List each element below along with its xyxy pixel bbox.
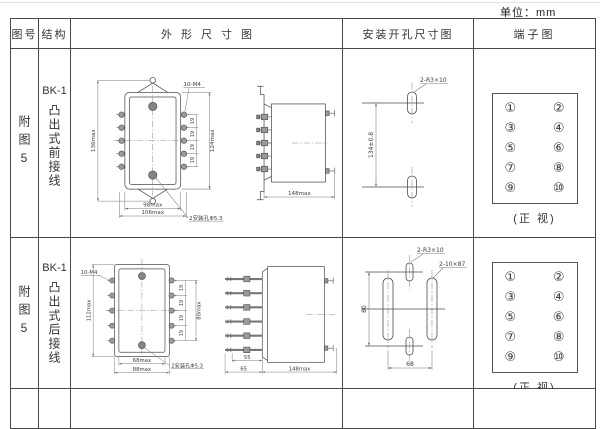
screw-spec-label: 10-M4: [183, 82, 201, 88]
header-structure: 结构: [39, 19, 71, 49]
mounting-holes-label: 2安装孔Φ5.3: [189, 214, 223, 222]
dim-height-total: 112max: [87, 300, 93, 322]
dim-span: 134±0.8: [368, 132, 375, 158]
terminal-pin: ⑥: [553, 142, 565, 155]
dim-pin-inner: 55: [244, 355, 251, 361]
terminal-pin: ④: [553, 122, 565, 135]
mounting-cell: 80 68 2-R3×10 2-10×87: [343, 238, 474, 389]
next-row-stub: [39, 389, 71, 429]
dimension-lines: [369, 254, 467, 371]
mounting-drawing: 134±0.8 2-R3×10: [346, 71, 471, 216]
next-row-stub: [343, 389, 474, 429]
terminal-pin: ⑨: [505, 182, 517, 195]
terminal-pin: ①: [505, 271, 517, 284]
side-view-drawing: 55 65 148max: [218, 248, 342, 388]
mounting-cell: 134±0.8 2-R3×10: [343, 49, 474, 238]
figure-no-cell: 附图5: [11, 238, 39, 389]
mounting-slots: [361, 263, 445, 355]
terminal-pin: ⑦: [505, 162, 517, 175]
next-row-stub: [71, 389, 343, 429]
model-label: BK-1: [42, 262, 66, 274]
dim-width-inner: 98max: [143, 203, 163, 209]
terminal-column-left: ① ③ ⑤ ⑦ ⑨: [505, 271, 517, 364]
outline-cell: 10-M4 112max 19 19 19 19 80max 68max 88m…: [71, 238, 343, 389]
terminal-pin: ③: [505, 291, 517, 304]
terminal-pin: ④: [553, 291, 565, 304]
terminal-pin: ⑤: [505, 311, 517, 324]
page-top-edge: [0, 2, 600, 3]
dim-height-total: 136max: [91, 129, 97, 152]
dim-pitch: 19: [179, 315, 185, 321]
dim-pitch: 19: [179, 285, 185, 291]
terminal-pin: ⑧: [553, 162, 565, 175]
spec-table: 图号 结构 外形尺寸图 安装开孔尺寸图 端子图 附图5 BK-1 凸出式前接线: [10, 18, 596, 429]
dim-pin-outer: 65: [240, 366, 247, 372]
dim-pitch: 19: [190, 118, 196, 125]
screw-spec-label: 10-M4: [81, 270, 98, 276]
header-figure-no: 图号: [11, 19, 39, 49]
header-label: 端子图: [514, 26, 556, 42]
spec-sheet-page: { "unit_label": "单位：mm", "headers": ["图号…: [0, 0, 600, 400]
mounting-holes-label: 2安装孔Φ5.3: [171, 361, 203, 369]
terminal-cell: ① ③ ⑤ ⑦ ⑨ ② ④ ⑥ ⑧ ⑩ (正 视): [474, 49, 596, 238]
slot-small-label: 2-R3×10: [417, 247, 444, 254]
slot-spec-label: 2-R3×10: [420, 77, 447, 84]
terminal-column-right: ② ④ ⑥ ⑧ ⑩: [553, 271, 565, 364]
dim-width: 68: [406, 361, 414, 368]
center-lines: [388, 255, 432, 364]
next-row-stub: [11, 389, 39, 429]
figure-no-cell: 附图5: [11, 49, 39, 238]
mounting-drawing: 80 68 2-R3×10 2-10×87: [343, 242, 473, 382]
dim-height-side: 124max: [210, 129, 216, 152]
figure-no-label: 附图5: [16, 115, 33, 171]
figure-no-label: 附图5: [16, 285, 33, 341]
dim-depth: 148max: [289, 366, 311, 372]
header-terminal-diagram: 端子图: [474, 19, 596, 49]
model-label: BK-1: [42, 85, 66, 97]
outline-cell: 136max 19 19 19 19 124max 10-M4 98max 10…: [71, 49, 343, 238]
terminal-pin: ②: [553, 271, 565, 284]
dim-pitch: 19: [190, 131, 196, 138]
structure-cell: BK-1 凸出式前接线: [39, 49, 71, 238]
slot-long-label: 2-10×87: [439, 261, 465, 268]
structure-cell: BK-1 凸出式后接线: [39, 238, 71, 389]
terminal-pin: ⑦: [505, 331, 517, 344]
header-mounting-dims: 安装开孔尺寸图: [343, 19, 474, 49]
front-view-drawing: 10-M4 112max 19 19 19 19 80max 68max 88m…: [79, 244, 212, 386]
terminal-pin: ⑩: [553, 182, 565, 195]
rear-studs: [325, 110, 334, 174]
dim-width-outer: 88max: [133, 367, 151, 373]
terminal-pin: ③: [505, 122, 517, 135]
terminal-pin: ②: [553, 102, 565, 115]
dim-pitch: 19: [179, 330, 185, 336]
dim-width-inner: 68max: [133, 358, 151, 364]
terminal-column-left: ① ③ ⑤ ⑦ ⑨: [505, 102, 517, 195]
terminal-box: ① ③ ⑤ ⑦ ⑨ ② ④ ⑥ ⑧ ⑩: [492, 93, 578, 204]
structure-type-label: 凸出式前接线: [46, 104, 63, 188]
dim-span: 80: [361, 305, 368, 313]
terminal-cell: ① ③ ⑤ ⑦ ⑨ ② ④ ⑥ ⑧ ⑩ (正 视): [474, 238, 596, 389]
terminal-pin: ⑤: [505, 142, 517, 155]
dim-pitch: 19: [179, 300, 185, 306]
header-outline-dims: 外形尺寸图: [71, 19, 343, 49]
structure-type-label: 凸出式后接线: [46, 281, 63, 365]
terminal-pin: ⑥: [553, 311, 565, 324]
dimension-lines: [98, 80, 224, 221]
dim-height-side: 80max: [196, 301, 202, 319]
header-label: 外形尺寸图: [152, 26, 261, 42]
dim-width-outer: 106max: [141, 210, 164, 216]
next-row-stub: [474, 389, 596, 429]
terminal-box: ① ③ ⑤ ⑦ ⑨ ② ④ ⑥ ⑧ ⑩: [492, 262, 578, 373]
terminal-pin: ⑨: [505, 351, 517, 364]
header-label: 图号: [12, 26, 38, 42]
terminal-pin: ①: [505, 102, 517, 115]
dim-depth: 148max: [288, 191, 311, 197]
header-label: 结构: [42, 26, 68, 42]
terminal-pin: ⑧: [553, 331, 565, 344]
terminal-caption: (正 视): [513, 210, 555, 226]
front-view-drawing: 136max 19 19 19 19 124max 10-M4 98max 10…: [83, 65, 232, 235]
terminal-pin: ⑩: [553, 351, 565, 364]
rear-pins: [225, 276, 262, 353]
dim-pitch: 19: [190, 144, 196, 151]
dim-pitch: 19: [190, 157, 196, 164]
terminal-column-right: ② ④ ⑥ ⑧ ⑩: [553, 102, 565, 195]
side-view-drawing: 148max: [238, 79, 342, 207]
header-label: 安装开孔尺寸图: [363, 26, 454, 42]
